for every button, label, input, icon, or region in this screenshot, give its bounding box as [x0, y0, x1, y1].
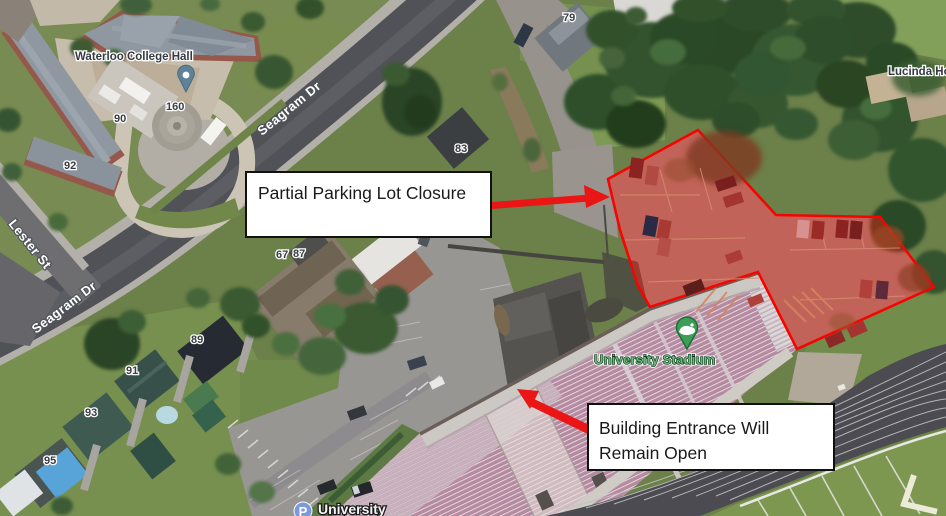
svg-text:Building Entrance Will: Building Entrance Will: [599, 418, 769, 438]
svg-text:93: 93: [85, 407, 97, 419]
svg-text:92: 92: [64, 160, 76, 172]
svg-text:160: 160: [166, 101, 184, 113]
svg-text:Waterloo College Hall: Waterloo College Hall: [75, 51, 193, 63]
svg-text:Remain Open: Remain Open: [599, 443, 707, 463]
svg-text:83: 83: [455, 143, 467, 155]
svg-text:89: 89: [191, 334, 203, 346]
svg-text:67: 67: [276, 249, 288, 261]
svg-text:79: 79: [563, 12, 575, 24]
svg-text:University Stadium: University Stadium: [594, 352, 715, 367]
svg-text:Lucinda Hou: Lucinda Hou: [888, 66, 946, 78]
svg-text:90: 90: [114, 113, 126, 125]
svg-text:95: 95: [44, 455, 56, 467]
svg-text:87: 87: [293, 248, 305, 260]
svg-text:91: 91: [126, 365, 138, 377]
svg-text:University: University: [318, 501, 386, 516]
svg-text:Partial Parking Lot Closure: Partial Parking Lot Closure: [258, 183, 466, 203]
svg-text:P: P: [299, 504, 308, 516]
